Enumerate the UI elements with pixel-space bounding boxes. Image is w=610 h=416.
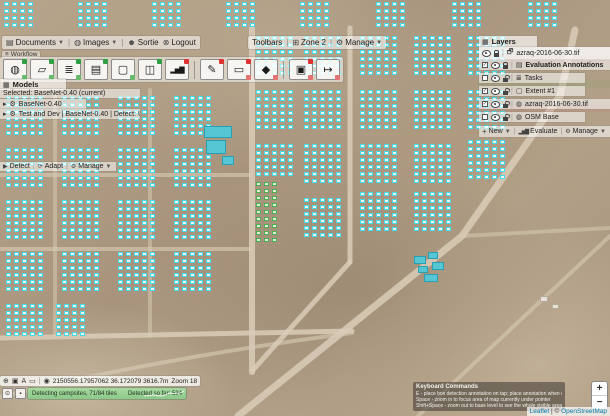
- clipboard-icon: ▤: [516, 61, 523, 69]
- detection-progress-bar: Detecting campsites, 71/84 tiles Detecte…: [28, 388, 186, 399]
- detect-button[interactable]: ▶Detect: [3, 163, 30, 170]
- box-edit-tool-button[interactable]: ▭: [227, 59, 251, 80]
- training-cap-icon: ◆: [262, 63, 270, 76]
- globe-tool-button[interactable]: ◍: [3, 59, 27, 80]
- lock-open-icon[interactable]: [503, 91, 508, 95]
- building-annotation: [432, 262, 444, 270]
- add-badge-icon: [49, 59, 54, 64]
- menu-separator: |: [286, 38, 288, 47]
- attribution-separator: | ©: [549, 408, 561, 415]
- clipboard-icon: ▤: [91, 63, 101, 76]
- osm-link[interactable]: OpenStreetMap: [561, 408, 607, 415]
- remove-badge-icon: [246, 75, 251, 80]
- zoom-in-button[interactable]: +: [592, 382, 607, 396]
- checkbox-checked-icon[interactable]: ✓: [482, 88, 488, 94]
- image-icon: ◍: [74, 38, 81, 47]
- menu-separator: |: [121, 38, 123, 47]
- globe-icon: ◍: [516, 113, 522, 121]
- box-select-tool-button[interactable]: ▢: [111, 59, 135, 80]
- export-tool-button[interactable]: ↦: [316, 59, 340, 80]
- power-icon: ⊗: [163, 38, 170, 47]
- layer-row-azraq-selected[interactable]: | 🗗 azraq-2016-06-30.tif: [479, 47, 610, 60]
- checkbox-checked-icon[interactable]: ✓: [482, 101, 488, 107]
- footer-separator: |: [66, 163, 68, 170]
- eye-icon[interactable]: [491, 101, 500, 108]
- layers-panel-header: ▦ Layers: [479, 36, 537, 47]
- globe-icon: ◍: [516, 100, 522, 108]
- chevron-down-icon: ▼: [600, 129, 606, 135]
- chevron-down-icon: ▼: [106, 164, 112, 170]
- checkbox-unchecked-icon[interactable]: [482, 75, 488, 81]
- layer-row-evaluation-annotations[interactable]: ✓ | ▤ Evaluation Annotations: [479, 60, 610, 70]
- row-separator: |: [511, 62, 513, 69]
- secondary-menubar: Toolbars | ⊞Zone 2 | ⚙Manage▼: [248, 36, 386, 49]
- building-annotation: [206, 140, 226, 154]
- export-icon: ↦: [323, 63, 332, 76]
- binoculars-icon: ◫: [145, 63, 155, 76]
- globe-icon: ◍: [10, 63, 20, 76]
- zone-menu[interactable]: ⊞Zone 2: [292, 38, 326, 47]
- add-badge-icon: [157, 59, 162, 64]
- layer-row-tasks[interactable]: | ≣ Tasks: [479, 73, 585, 83]
- chevron-down-icon: ▼: [505, 129, 511, 135]
- crosshair-icon[interactable]: ⊕: [3, 377, 9, 385]
- eye-icon[interactable]: [491, 88, 500, 95]
- box-edit-icon: ▭: [234, 63, 244, 76]
- checkbox-unchecked-icon[interactable]: [482, 114, 488, 120]
- remove-badge-icon: [184, 59, 189, 64]
- rect-tool-icon[interactable]: ▭: [29, 377, 36, 385]
- models-icon: ▦: [3, 81, 10, 89]
- layers-manage-button[interactable]: ⚙Manage▼: [565, 128, 606, 135]
- progress-sparkline: [144, 389, 184, 398]
- row-separator: |: [502, 50, 504, 57]
- binoculars-tool-button[interactable]: ◫: [138, 59, 162, 80]
- box-remove-tool-button[interactable]: ▣: [289, 59, 313, 80]
- map-zoom-control: + −: [591, 381, 608, 410]
- toolbar-separator: [283, 61, 284, 79]
- bar-chart-icon: ▂▅▇: [170, 66, 183, 74]
- main-menubar: ▤Documents▼ | ◍Images▼ | ☻Sortie ⊗Logout: [2, 36, 200, 49]
- building-annotation: [204, 126, 232, 138]
- square-tool-icon[interactable]: ▣: [12, 377, 19, 385]
- layers-icon: ▦: [482, 38, 489, 46]
- grid-icon: ⊞: [292, 38, 299, 47]
- row-separator: |: [511, 75, 513, 82]
- lock-icon[interactable]: [503, 65, 508, 69]
- box-icon: ▣: [296, 63, 306, 76]
- zoom-level: Zoom 18: [171, 378, 197, 385]
- eye-icon[interactable]: [491, 75, 500, 82]
- status-separator: |: [39, 378, 41, 385]
- manage-menu[interactable]: ⚙Manage▼: [336, 38, 382, 47]
- layer-row-extent[interactable]: ✓ | ▢ Extent #1: [479, 86, 585, 96]
- map-attribution: Leaflet | © OpenStreetMap: [527, 407, 610, 416]
- chart-icon: ▂▅▇: [518, 129, 528, 135]
- menu-separator: |: [330, 38, 332, 47]
- sortie-menu[interactable]: ☻Sortie: [127, 38, 158, 47]
- models-panel-title: Models: [13, 80, 39, 89]
- clipboard-tool-button[interactable]: ▤: [84, 59, 108, 80]
- chevron-down-icon: ▼: [58, 40, 64, 46]
- polygon-draw-tool-button[interactable]: ▱: [30, 59, 54, 80]
- checkbox-checked-icon[interactable]: ✓: [482, 62, 488, 68]
- polygon-icon: ▱: [38, 63, 46, 76]
- layer-row-osm-base[interactable]: | ◍ OSM Base: [479, 112, 585, 122]
- remove-badge-icon: [335, 75, 340, 80]
- keyboard-commands-title: Keyboard Commands: [416, 384, 562, 390]
- leaflet-link[interactable]: Leaflet: [530, 408, 550, 415]
- play-icon: ▶: [3, 163, 8, 170]
- add-badge-icon: [103, 59, 108, 64]
- add-badge-icon: [76, 75, 81, 80]
- pin-icon: ◉: [44, 377, 50, 385]
- building-annotation: [418, 266, 428, 273]
- gear-icon: ⚙: [336, 38, 343, 47]
- refresh-icon: ⟳: [38, 163, 43, 170]
- chevron-down-icon: ▼: [376, 40, 382, 46]
- image-icon: 🗗: [507, 48, 514, 59]
- gear-icon: ⚙: [71, 163, 76, 170]
- progress-status-text: Detecting campsites, 71/84 tiles: [32, 391, 117, 397]
- lock-open-icon[interactable]: [503, 104, 508, 108]
- adapt-button[interactable]: ⟳Adapt: [38, 163, 63, 170]
- layers-panel-footer: +New▼ | ▂▅▇Evaluate | ⚙Manage▼: [479, 126, 610, 137]
- map-application: ▤Documents▼ | ◍Images▼ | ☻Sortie ⊗Logout…: [0, 0, 610, 416]
- task-list-tool-button[interactable]: ≣: [57, 59, 81, 80]
- label-tool-icon[interactable]: A: [22, 378, 27, 385]
- evaluate-button[interactable]: ▂▅▇Evaluate: [518, 128, 557, 135]
- wrench-icon: ⚙: [565, 128, 570, 135]
- toolbar-separator: [194, 61, 195, 79]
- building-annotation: [428, 252, 438, 259]
- new-layer-button[interactable]: +New▼: [482, 127, 511, 136]
- eye-icon[interactable]: [491, 114, 500, 121]
- user-icon: ☻: [127, 38, 135, 47]
- models-selected-line: Selected: BaseNet-0.40 (current): [0, 89, 140, 98]
- box-select-icon: ▢: [118, 63, 128, 76]
- pen-icon: ✎: [207, 63, 216, 76]
- layers-panel-title: Layers: [492, 37, 516, 46]
- edit-badge-icon: [130, 75, 135, 80]
- training-tool-button[interactable]: ◆: [254, 59, 278, 80]
- row-separator: |: [511, 88, 513, 95]
- gear-icon: ⚙: [10, 110, 16, 118]
- building: [552, 304, 559, 309]
- watch-icon[interactable]: ⊙: [2, 388, 13, 399]
- layer-row-azraq-raster[interactable]: ✓ | ◍ azraq-2016-06-30.tif: [479, 99, 610, 109]
- building-annotation: [222, 156, 234, 165]
- documents-menu[interactable]: ▤Documents▼: [6, 38, 64, 47]
- logout-button[interactable]: ⊗Logout: [163, 38, 196, 47]
- footer-separator: |: [560, 128, 562, 135]
- cursor-coordinates: 2150556.17957062 36.172079 3616.7m: [53, 378, 169, 385]
- row-separator: |: [511, 101, 513, 108]
- lock-open-icon[interactable]: [503, 117, 508, 121]
- models-manage-button[interactable]: ⚙Manage▼: [71, 163, 112, 170]
- models-panel-footer: ▶Detect | ⟳Adapt | ⚙Manage▼: [0, 162, 116, 171]
- chevron-down-icon: ▼: [111, 40, 117, 46]
- remove-badge-icon: [308, 59, 313, 64]
- chevron-right-icon: ▸: [3, 110, 7, 118]
- folder-icon: ▤: [6, 38, 14, 47]
- chevron-right-icon: ▸: [3, 100, 7, 108]
- eye-icon[interactable]: [482, 50, 491, 57]
- toolbars-menu[interactable]: Toolbars: [252, 38, 282, 47]
- lock-open-icon[interactable]: [503, 78, 508, 82]
- model-item-basenet[interactable]: ▸ ⚙ BaseNet-0.40: [0, 99, 86, 109]
- task-list-icon: ≣: [516, 74, 522, 82]
- building-annotation: [414, 256, 426, 264]
- building-annotation: [424, 274, 438, 282]
- building: [540, 296, 548, 302]
- footer-separator: |: [514, 128, 516, 135]
- extent-box-icon: ▢: [516, 87, 523, 95]
- lock-icon[interactable]: [494, 53, 499, 57]
- chart-tool-button[interactable]: ▂▅▇: [165, 59, 189, 80]
- model-item-test-dev[interactable]: ▸ ⚙ Test and Dev | BaseNet-0.40 | Detect…: [0, 109, 140, 119]
- stop-icon[interactable]: ▪: [15, 388, 26, 399]
- task-list-icon: ≣: [64, 63, 73, 76]
- plus-icon: +: [482, 127, 487, 136]
- add-badge-icon: [22, 59, 27, 64]
- eye-icon[interactable]: [491, 62, 500, 69]
- pen-tool-button[interactable]: ✎: [200, 59, 224, 80]
- remove-badge-icon: [219, 59, 224, 64]
- footer-separator: |: [33, 163, 35, 170]
- map-status-bar: ⊕ ▣ A ▭ | ◉ 2150556.17957062 36.172079 3…: [0, 376, 200, 386]
- row-separator: |: [511, 114, 513, 121]
- detection-progress-area: ⊙ ▪ Detecting campsites, 71/84 tiles Det…: [2, 388, 186, 399]
- add-badge-icon: [76, 59, 81, 64]
- gear-icon: ⚙: [10, 100, 16, 108]
- menu-separator: |: [68, 38, 70, 47]
- remove-badge-icon: [308, 75, 313, 80]
- remove-badge-icon: [246, 59, 251, 64]
- remove-badge-icon: [273, 75, 278, 80]
- images-menu[interactable]: ◍Images▼: [74, 38, 117, 47]
